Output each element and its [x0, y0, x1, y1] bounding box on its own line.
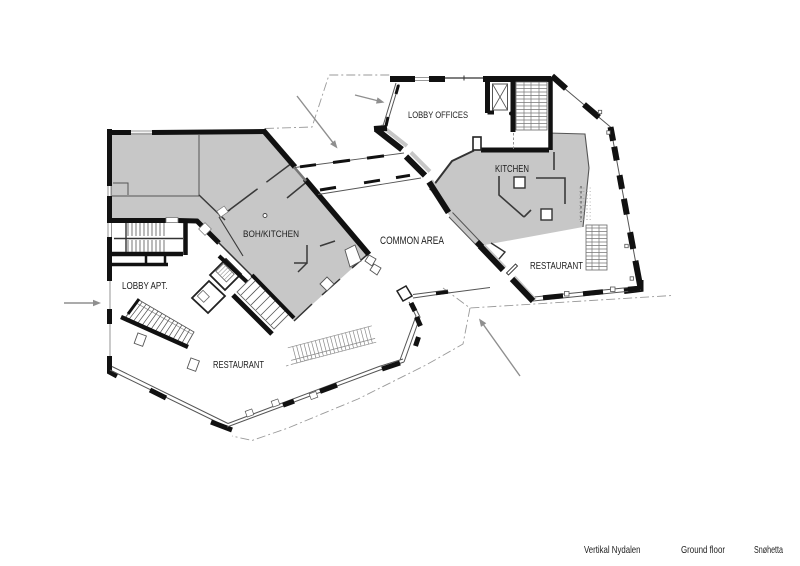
svg-text:RESTAURANT: RESTAURANT [530, 261, 583, 272]
svg-text:Vertikal Nydalen: Vertikal Nydalen [584, 544, 641, 556]
svg-text:KITCHEN: KITCHEN [495, 164, 529, 175]
svg-text:Snøhetta: Snøhetta [754, 544, 783, 556]
svg-text:Ground floor: Ground floor [681, 544, 725, 556]
svg-text:BOH/KITCHEN: BOH/KITCHEN [243, 229, 299, 239]
svg-text:LOBBY OFFICES: LOBBY OFFICES [408, 110, 468, 120]
svg-text:COMMON AREA: COMMON AREA [380, 235, 445, 247]
svg-text:LOBBY APT.: LOBBY APT. [122, 281, 168, 292]
svg-text:RESTAURANT: RESTAURANT [213, 360, 264, 371]
